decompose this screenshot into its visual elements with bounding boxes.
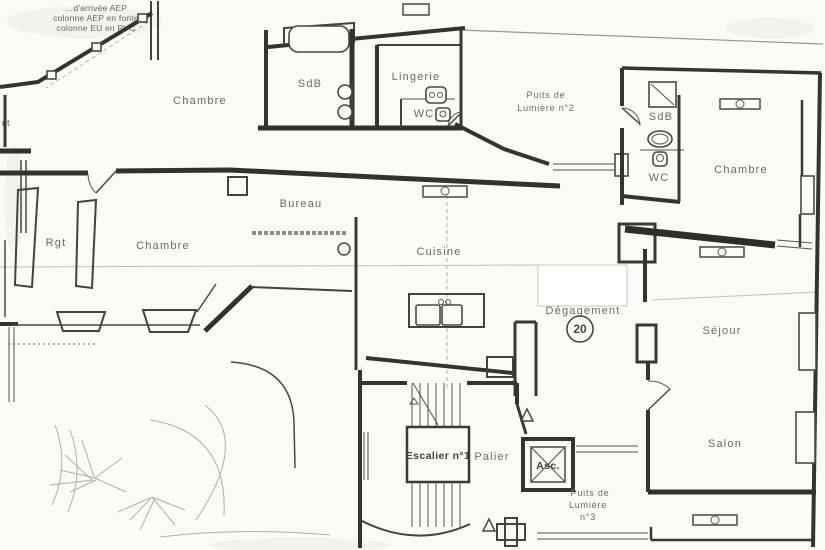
label-rgt: Rgt	[46, 237, 67, 249]
door-swing	[648, 389, 670, 410]
label-puits3-line1: Puits de	[571, 488, 610, 498]
kitchen-sink-icon	[442, 305, 462, 325]
unit-number: 20	[573, 322, 587, 336]
kitchen-sink-icon	[416, 305, 440, 325]
wall-pier	[505, 518, 517, 546]
plant-sketch	[50, 405, 330, 537]
wall-pier	[228, 177, 247, 195]
label-chambre-ne: Chambre	[714, 164, 768, 176]
label-sdb-nw: SdB	[298, 78, 322, 90]
label-puits2-line1: Puits de	[527, 90, 566, 100]
window	[796, 412, 815, 463]
label-puits3-line2: Lumière	[569, 500, 607, 510]
washbasin-icon	[338, 85, 352, 99]
door-swing	[88, 174, 96, 193]
stairs-icon	[412, 482, 460, 527]
door-swing	[96, 171, 116, 193]
label-ascenseur: Asc.	[536, 460, 560, 472]
window	[576, 446, 638, 452]
label-degagement: Dégagement	[546, 305, 621, 317]
unit-number-badge: 20	[567, 316, 593, 342]
label-chambre-nw: Chambre	[173, 95, 227, 107]
label-wc-ne: WC	[649, 172, 670, 184]
wall-pier	[57, 312, 105, 331]
terrace-edge	[231, 362, 295, 468]
label-puits3-line3: n°3	[580, 512, 596, 522]
window	[799, 313, 816, 370]
scan-artifacts	[4, 6, 815, 550]
label-puits2-line2: Lumière n°2	[517, 103, 574, 113]
wall-column	[637, 325, 656, 362]
entry-corridor	[455, 124, 628, 176]
floor-plan-drawing: …d'arrivée AEP colonne AEP en fonte colo…	[0, 0, 825, 550]
window	[777, 240, 812, 249]
rooms-west	[12, 188, 352, 468]
room-cuisine	[366, 294, 536, 396]
toilet-icon	[436, 108, 450, 121]
stairs-icon	[412, 383, 460, 427]
corner-note-line2: colonne AEP en fonte	[53, 13, 139, 23]
bathtub-icon	[289, 26, 349, 52]
duct-box	[403, 4, 429, 15]
label-sejour: Séjour	[703, 325, 742, 337]
direction-arrow-icon	[483, 519, 495, 531]
wall-pier	[497, 524, 525, 540]
window	[801, 176, 814, 214]
direction-arrow-icon	[410, 398, 418, 404]
door-swing	[338, 243, 350, 255]
label-sdb-ne: SdB	[649, 111, 673, 123]
rooms-sejour-salon	[648, 362, 816, 540]
label-bureau: Bureau	[280, 198, 323, 210]
washbasin-icon	[338, 105, 352, 119]
label-cuisine: Cuisine	[416, 246, 461, 258]
label-chambre-w: Chambre	[136, 240, 190, 252]
label-salon: Salon	[708, 438, 742, 450]
label-lingerie: Lingerie	[392, 71, 441, 83]
label-palier: Palier	[474, 451, 509, 463]
window-pier	[92, 43, 101, 51]
window	[553, 164, 616, 170]
corner-note-line1: …d'arrivée AEP	[65, 3, 128, 13]
wall-pier	[143, 310, 196, 332]
wardrobe	[76, 200, 96, 288]
whiteout-patch	[538, 265, 627, 306]
door-swing	[648, 381, 670, 389]
label-wc-nw: WC	[414, 108, 435, 120]
floor-plan-scan: …d'arrivée AEP colonne AEP en fonte colo…	[0, 0, 825, 550]
window-pier	[138, 14, 147, 22]
window-pier	[47, 71, 56, 79]
label-escalier: Escalier n°1	[406, 450, 470, 462]
